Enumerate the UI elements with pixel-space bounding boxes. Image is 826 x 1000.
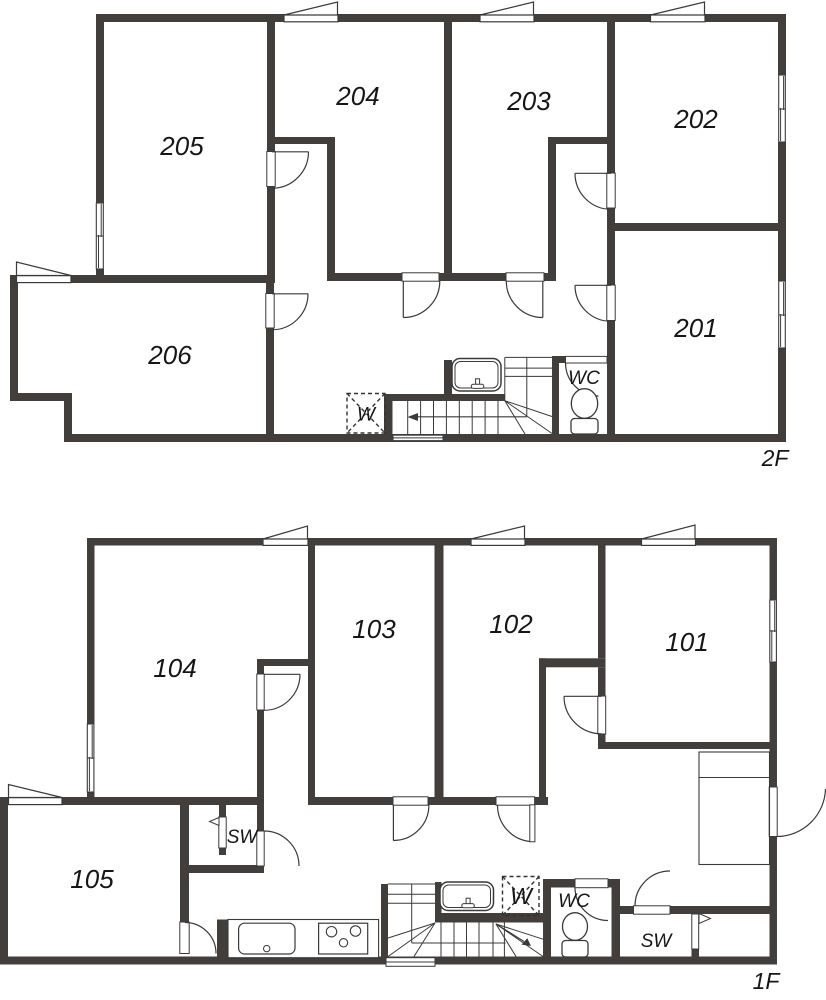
svg-text:WC: WC (558, 891, 590, 912)
svg-text:WC: WC (568, 368, 600, 389)
svg-text:1F: 1F (753, 968, 782, 994)
svg-text:SW: SW (227, 827, 260, 848)
svg-text:203: 203 (506, 86, 551, 116)
svg-text:W: W (357, 405, 377, 426)
svg-text:204: 204 (335, 81, 379, 111)
svg-text:201: 201 (673, 313, 717, 343)
svg-text:SW: SW (641, 931, 674, 952)
svg-text:205: 205 (159, 131, 204, 161)
svg-text:102: 102 (489, 609, 533, 639)
svg-text:206: 206 (147, 340, 192, 370)
svg-text:W: W (510, 883, 534, 909)
svg-text:101: 101 (665, 627, 708, 657)
svg-text:103: 103 (352, 614, 396, 644)
svg-text:104: 104 (153, 653, 196, 683)
svg-text:2F: 2F (761, 445, 791, 471)
svg-text:202: 202 (673, 104, 718, 134)
svg-text:105: 105 (70, 864, 114, 894)
